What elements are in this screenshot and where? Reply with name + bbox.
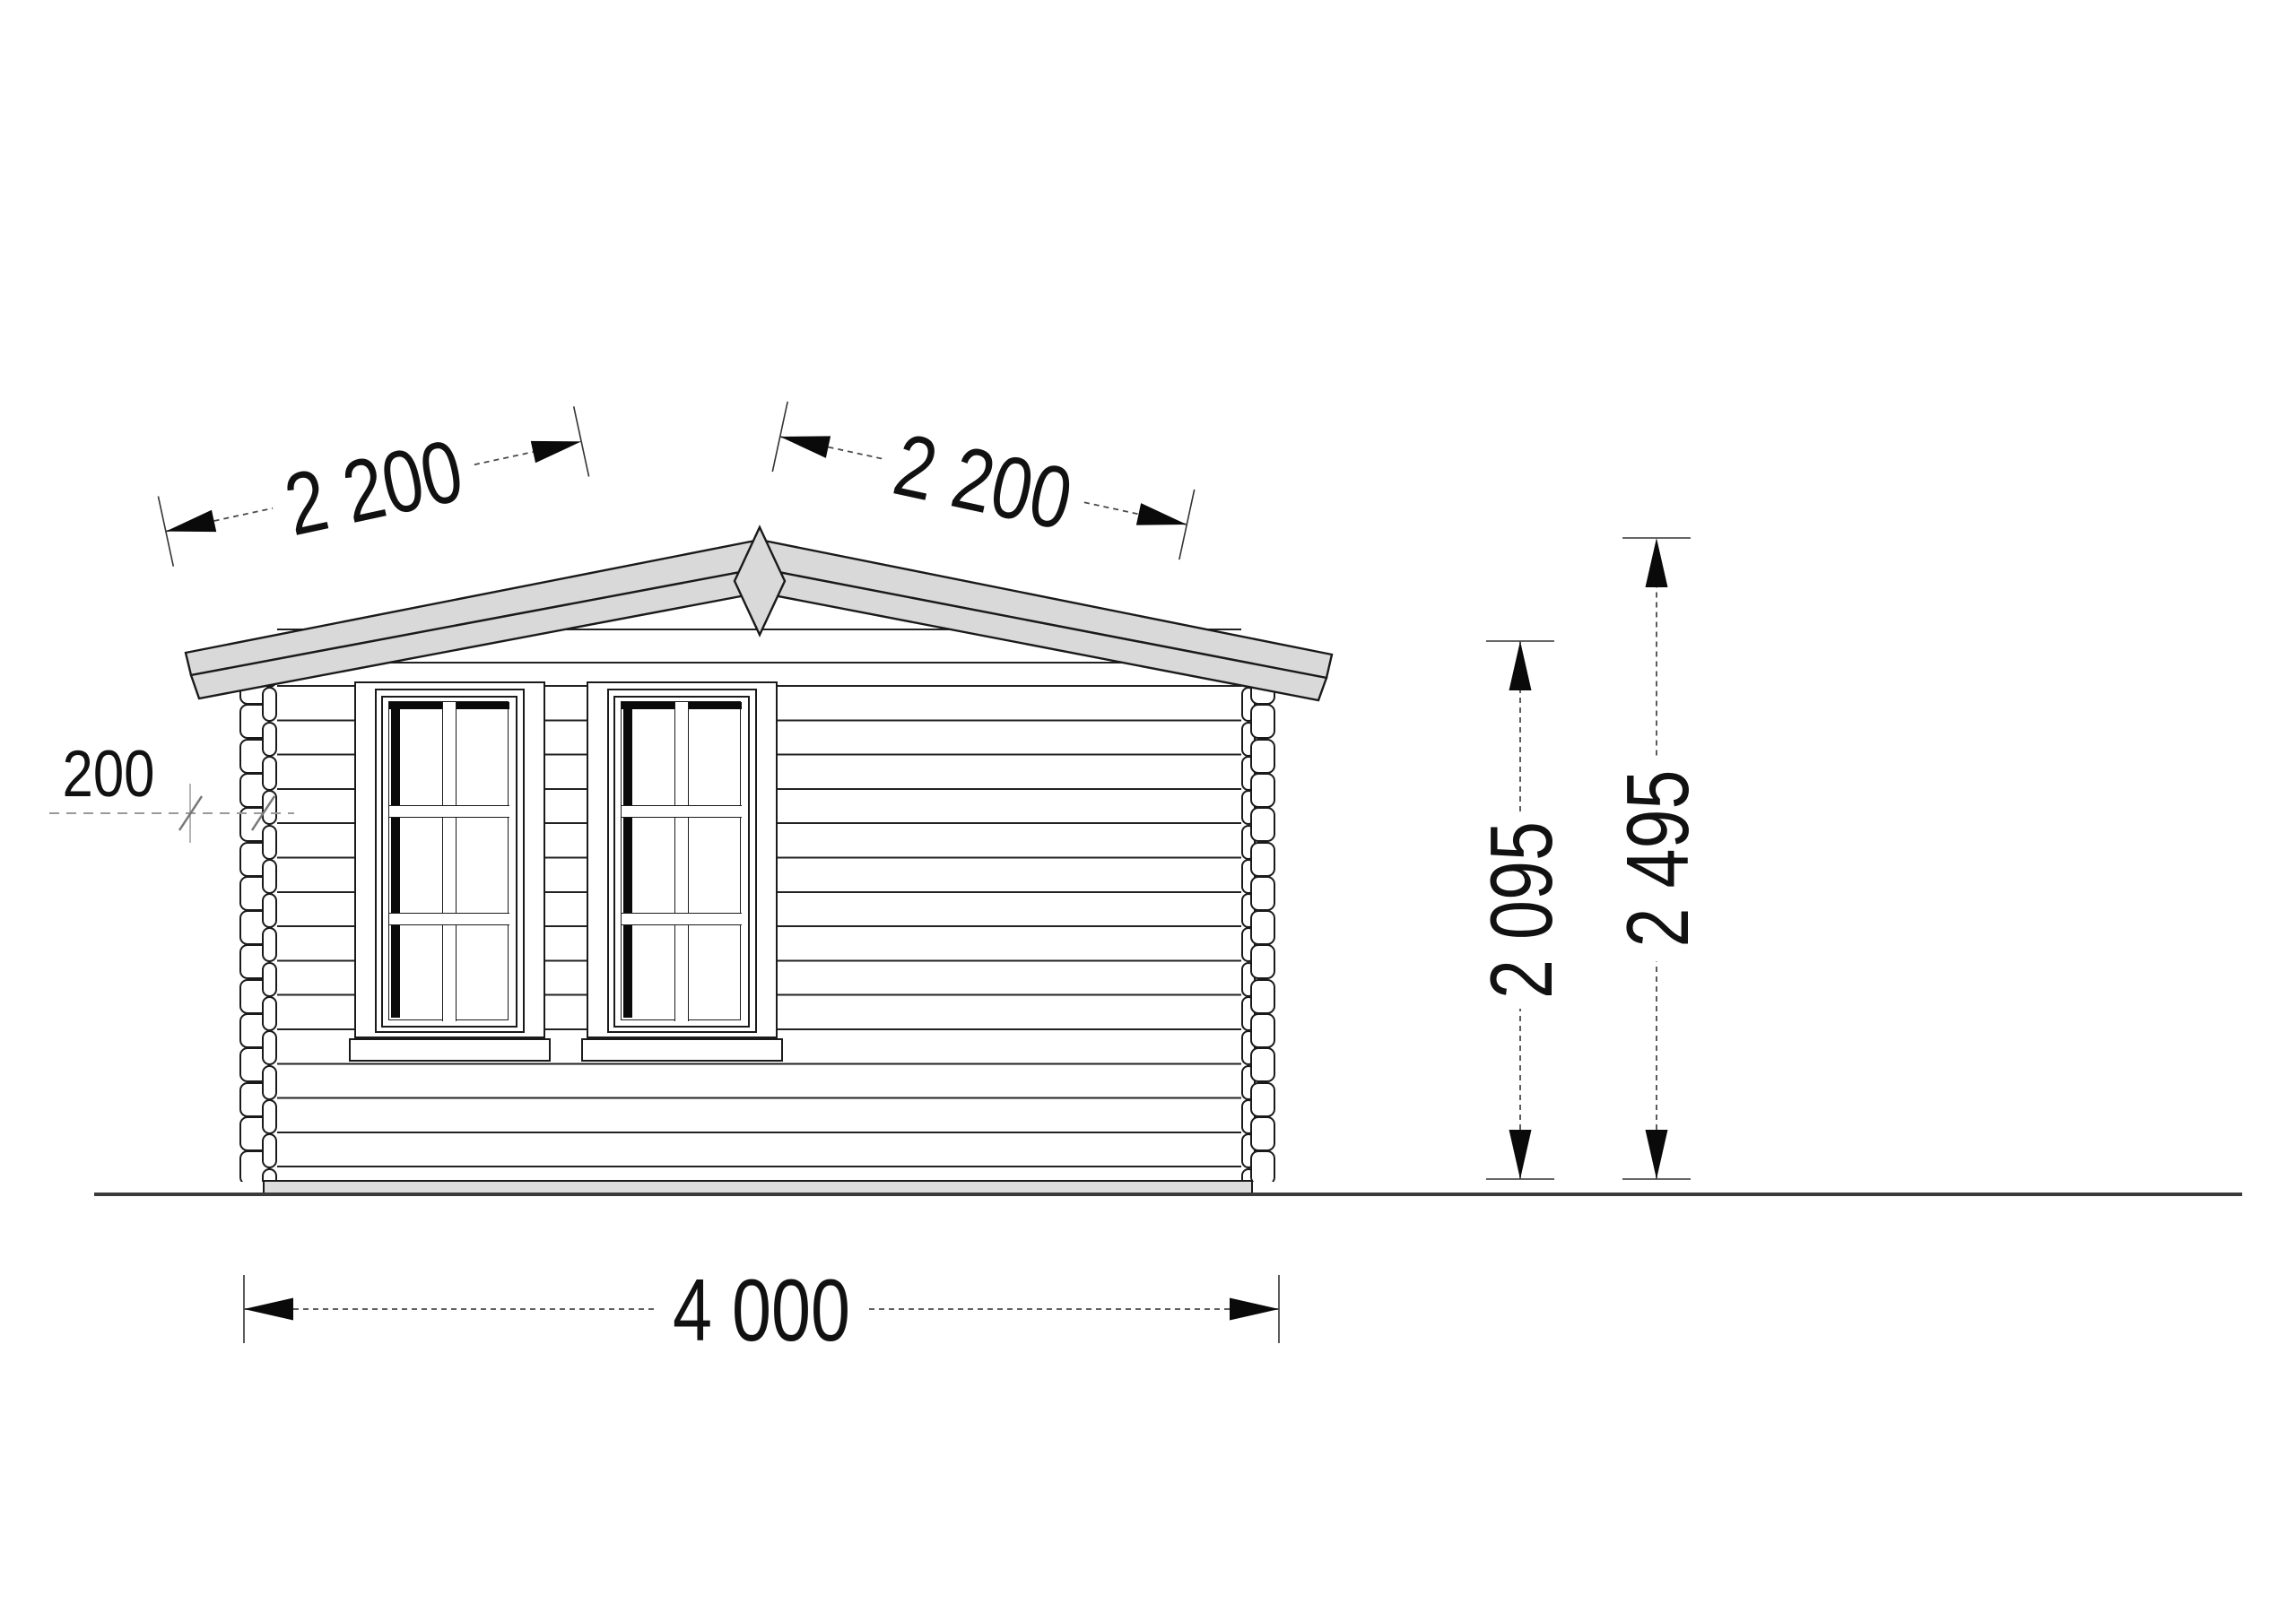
dim-label-ridge-height: 2 495 [1608, 770, 1707, 948]
dim-building-width: 4 000 [244, 1261, 1279, 1359]
dim-wall-height: 2 095 [1472, 641, 1570, 1179]
roof-and-dimensions-overlay: 2 200 2 200 200 2 095 [0, 0, 2296, 1622]
elevation-drawing: 2 200 2 200 200 2 095 [0, 0, 2296, 1622]
dim-label-roof-slope-right: 2 200 [886, 414, 1081, 548]
dim-label-roof-slope-left: 2 200 [276, 421, 471, 554]
dim-roof-overhang: 200 [49, 738, 294, 843]
roof-left-lower-band [191, 568, 760, 698]
dim-ridge-height: 2 495 [1608, 538, 1707, 1179]
dim-label-building-width: 4 000 [673, 1261, 850, 1359]
dim-label-wall-height: 2 095 [1472, 821, 1570, 999]
dim-label-roof-overhang: 200 [63, 738, 155, 811]
dim-roof-slope-right: 2 200 [770, 389, 1197, 574]
roof [186, 527, 1332, 700]
roof-right-lower-band [760, 568, 1326, 700]
dim-roof-slope-left: 2 200 [155, 395, 592, 581]
